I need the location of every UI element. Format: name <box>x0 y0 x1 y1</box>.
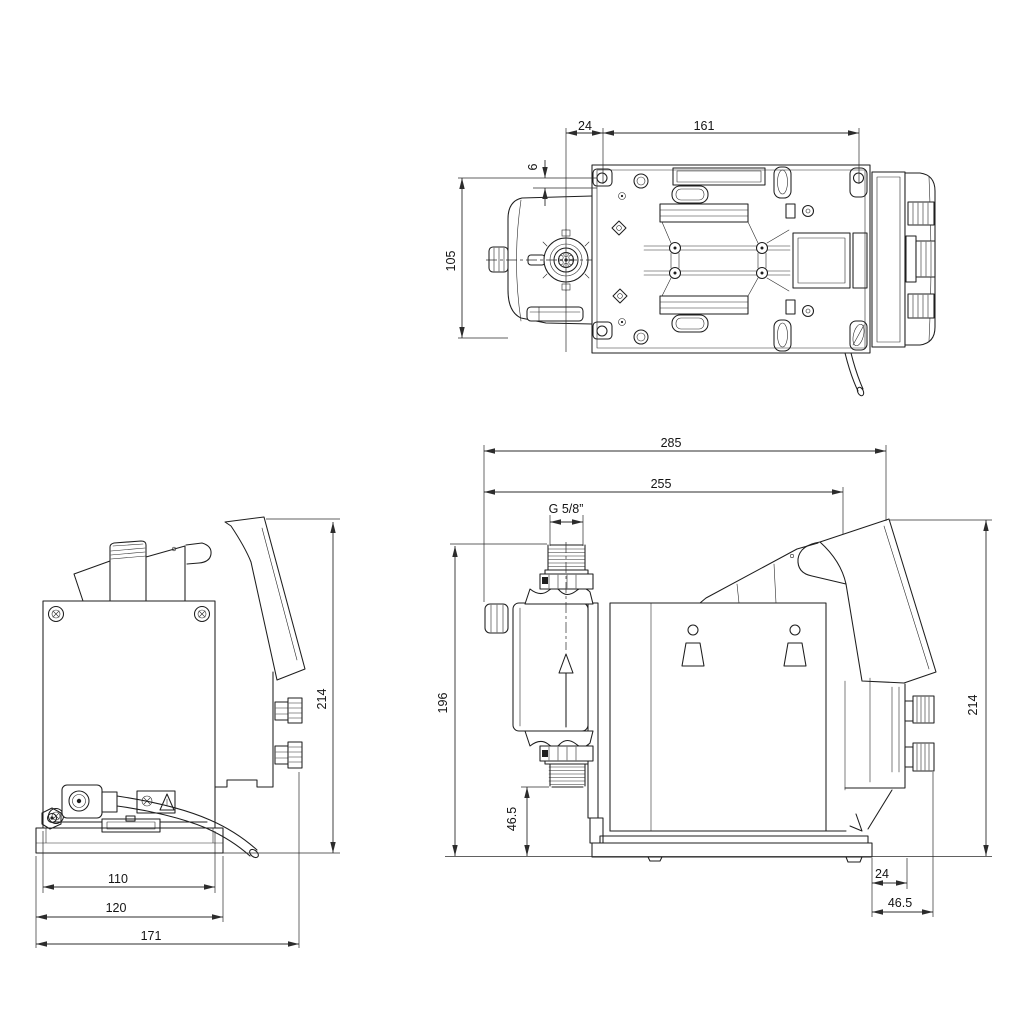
top-port-icon <box>525 545 593 604</box>
dim-label-255: 255 <box>651 477 672 491</box>
dim-label-24-side: 24 <box>875 867 889 881</box>
dim-label-120: 120 <box>106 901 127 915</box>
cable-gland-icon <box>62 785 102 818</box>
dim-label-285: 285 <box>661 436 682 450</box>
power-cable-icon <box>845 353 865 397</box>
side-view-knobs-icon <box>905 696 934 771</box>
dim-label-105: 105 <box>444 251 458 272</box>
top-view-knobs-icon <box>906 202 935 318</box>
dim-label-161: 161 <box>694 119 715 133</box>
side-view: 285 255 G 5/8” 196 46.5 214 24 46.5 <box>436 436 992 917</box>
pump-dimensional-drawing: 24 161 6 105 <box>0 0 1024 1024</box>
dim-label-46-5-bottom: 46.5 <box>888 896 912 910</box>
dim-label-24-top: 24 <box>578 119 592 133</box>
top-view: 24 161 6 105 <box>444 119 935 397</box>
dim-label-214-side: 214 <box>966 695 980 716</box>
technical-drawing-page: 24 161 6 105 <box>0 0 1024 1024</box>
dim-label-214-front: 214 <box>315 689 329 710</box>
dim-label-171: 171 <box>141 929 162 943</box>
top-left-knob-icon <box>489 247 508 272</box>
dim-label-46-5-side: 46.5 <box>505 807 519 831</box>
bottom-port-icon <box>525 731 593 787</box>
front-view: 214 110 120 171 <box>36 517 340 948</box>
dim-label-6: 6 <box>526 163 540 170</box>
dim-label-thread: G 5/8” <box>549 502 584 516</box>
front-view-knobs-icon <box>275 698 302 768</box>
dim-label-110: 110 <box>108 872 128 886</box>
dim-label-196: 196 <box>436 693 450 714</box>
left-knob-icon <box>485 604 508 633</box>
